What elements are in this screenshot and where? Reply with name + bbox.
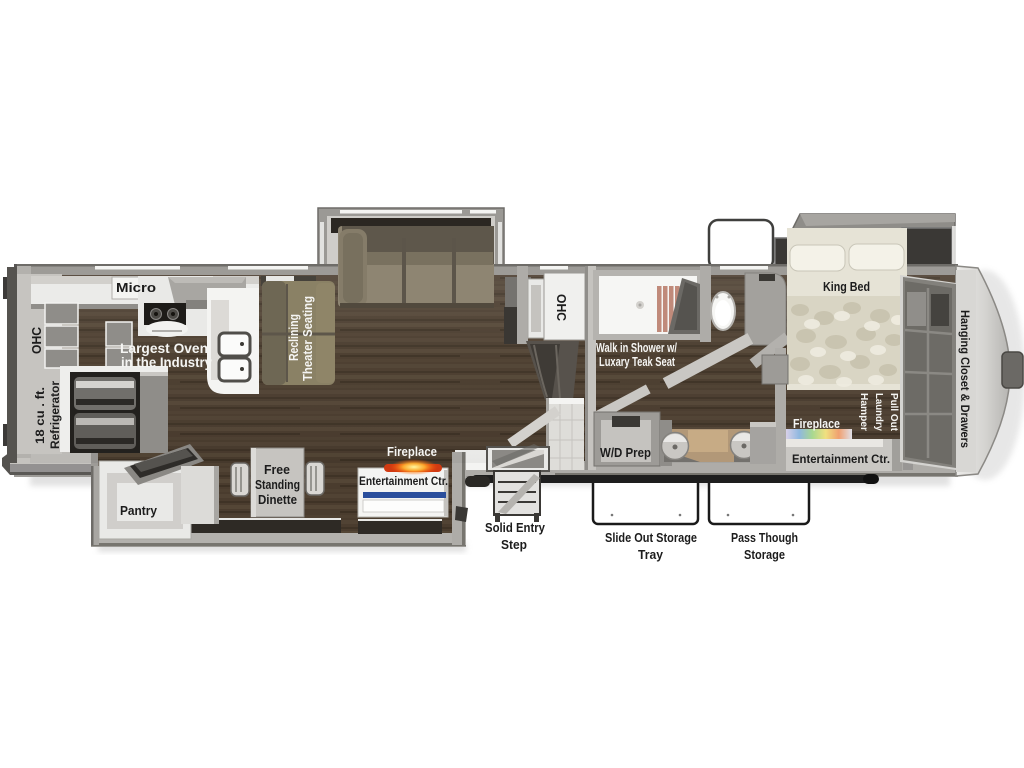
svg-text:Walk in Shower w/: Walk in Shower w/ bbox=[596, 341, 677, 355]
svg-text:Fireplace: Fireplace bbox=[793, 417, 840, 431]
svg-text:Tray: Tray bbox=[638, 548, 663, 562]
svg-text:OHC: OHC bbox=[554, 294, 568, 321]
svg-text:Free: Free bbox=[264, 463, 290, 477]
svg-text:Standing: Standing bbox=[255, 478, 300, 492]
svg-text:Hanging Closet & Drawers: Hanging Closet & Drawers bbox=[958, 310, 970, 448]
svg-text:W/D Prep: W/D Prep bbox=[600, 446, 651, 460]
svg-text:Entertainment Ctr.: Entertainment Ctr. bbox=[792, 452, 890, 466]
svg-text:Reclining: Reclining bbox=[287, 314, 301, 361]
svg-text:King Bed: King Bed bbox=[823, 280, 870, 294]
svg-text:Dinette: Dinette bbox=[258, 493, 297, 507]
svg-text:Micro: Micro bbox=[116, 280, 156, 295]
svg-text:Refrigerator: Refrigerator bbox=[48, 381, 62, 449]
svg-text:in the Industry: in the Industry bbox=[121, 355, 212, 370]
svg-text:Fireplace: Fireplace bbox=[387, 445, 437, 459]
svg-text:OHC: OHC bbox=[30, 327, 44, 354]
svg-text:Hamper: Hamper bbox=[858, 393, 870, 431]
svg-text:Luxary Teak Seat: Luxary Teak Seat bbox=[599, 355, 676, 369]
svg-text:Step: Step bbox=[501, 538, 527, 552]
svg-text:Pull Out: Pull Out bbox=[888, 393, 900, 431]
svg-text:Largest Oven: Largest Oven bbox=[120, 341, 208, 356]
svg-text:Slide Out Storage: Slide Out Storage bbox=[605, 531, 697, 545]
svg-text:18 cu . ft.: 18 cu . ft. bbox=[33, 387, 47, 444]
svg-text:Entertainment Ctr.: Entertainment Ctr. bbox=[359, 476, 448, 488]
svg-text:Storage: Storage bbox=[744, 548, 785, 562]
svg-text:Pass Though: Pass Though bbox=[731, 531, 798, 545]
svg-text:Solid Entry: Solid Entry bbox=[485, 521, 545, 535]
svg-text:Pantry: Pantry bbox=[120, 504, 157, 518]
svg-text:Theater Seating: Theater Seating bbox=[301, 296, 315, 381]
svg-text:Laundry: Laundry bbox=[873, 393, 885, 431]
